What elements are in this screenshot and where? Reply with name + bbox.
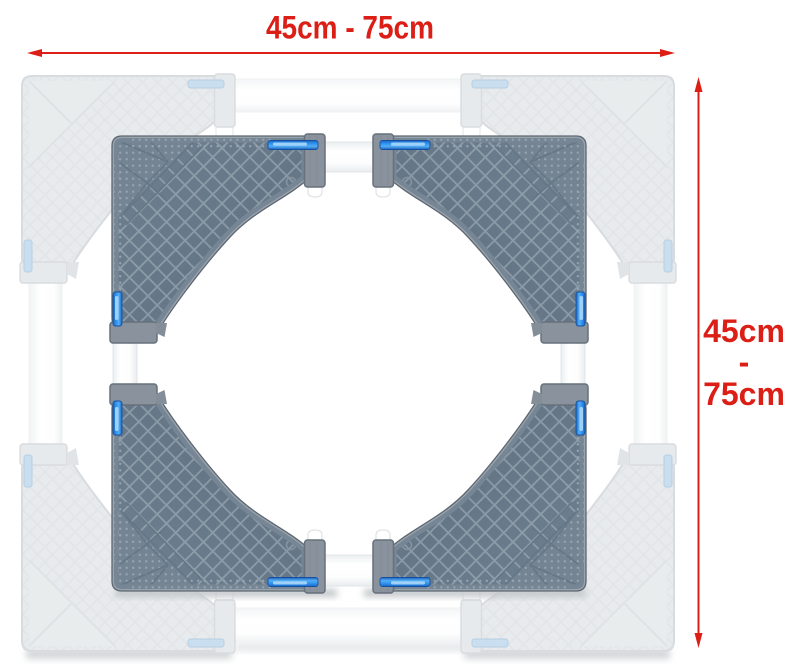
- svg-text:-: -: [739, 344, 750, 380]
- svg-text:45cm - 75cm: 45cm - 75cm: [266, 10, 434, 46]
- svg-text:75cm: 75cm: [703, 376, 785, 412]
